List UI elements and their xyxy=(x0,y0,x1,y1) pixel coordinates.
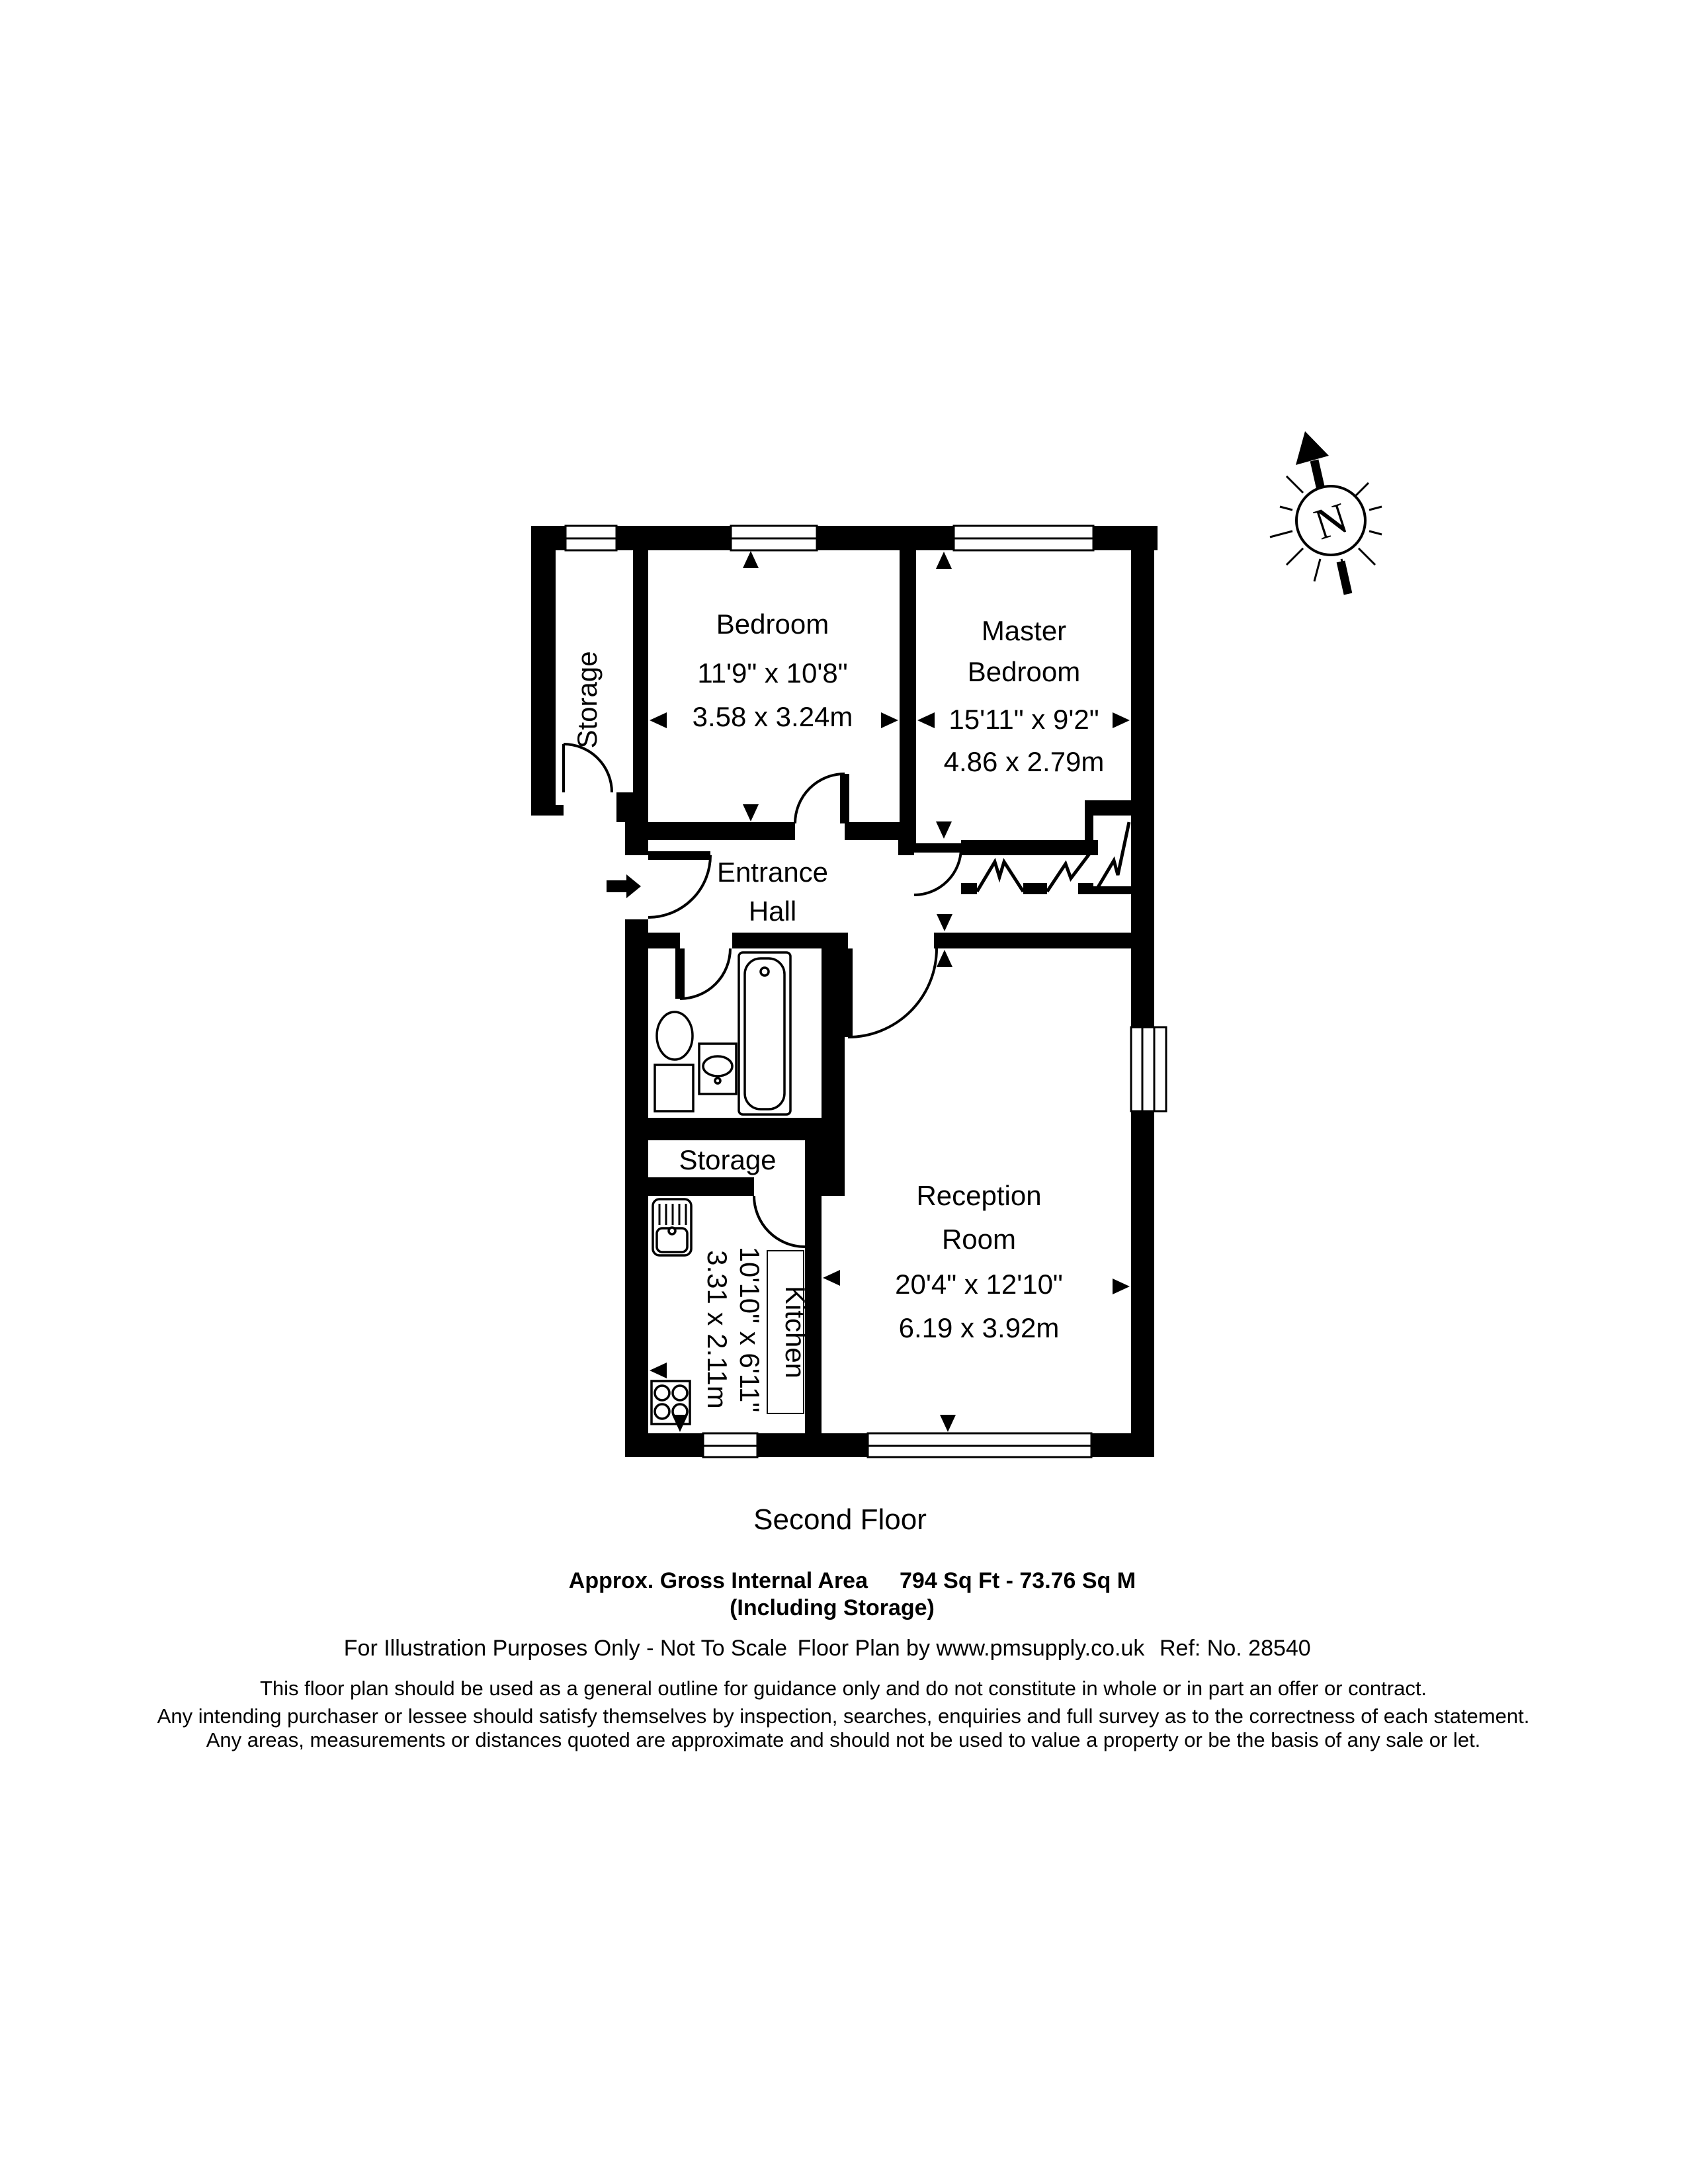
window-reception-right-shape xyxy=(1154,1027,1166,1111)
room-label-hall-line2: Hall xyxy=(749,896,796,927)
basin-icon-shape xyxy=(703,1056,732,1076)
dimension-arrow xyxy=(936,552,952,569)
bathtub-icon-shape xyxy=(745,958,784,1109)
dimension-arrow xyxy=(650,1363,667,1378)
wall-segment xyxy=(817,526,954,550)
north-compass-icon: N xyxy=(1270,431,1382,594)
storage-top-door xyxy=(564,744,612,792)
toilet-icon xyxy=(655,1012,693,1111)
wall-segment xyxy=(845,822,898,840)
page: { "floorplan": { "compass": { "label": "… xyxy=(0,0,1688,2184)
wall-segment xyxy=(961,883,977,894)
window-reception-bottom xyxy=(868,1433,1091,1457)
doors xyxy=(564,744,1129,1247)
area-note: (Including Storage) xyxy=(730,1595,935,1620)
hob-icon-shape xyxy=(673,1386,687,1400)
master-bedroom-door xyxy=(914,843,961,895)
room-label-master-line2: Bedroom xyxy=(968,656,1080,687)
dimension-arrow xyxy=(937,950,952,967)
room-dims-bedroom-metric: 3.58 x 3.24m xyxy=(693,701,853,732)
room-dims-reception-imperial: 20'4" x 12'10" xyxy=(895,1269,1063,1300)
compass-rays-shape xyxy=(1369,507,1382,510)
room-label-reception-line1: Reception xyxy=(916,1180,1041,1211)
wall-segment xyxy=(1023,883,1047,894)
hob-icon-shape xyxy=(655,1386,669,1400)
room-dims-master-imperial: 15'11" x 9'2" xyxy=(949,704,1099,735)
toilet-icon-shape xyxy=(657,1012,693,1060)
disclaimer-line-2: Any intending purchaser or lessee should… xyxy=(157,1704,1530,1728)
window-storage-top xyxy=(566,526,616,550)
wall-segment xyxy=(822,948,845,1118)
hob-icon-shape xyxy=(655,1404,669,1419)
room-label-storage-lower: Storage xyxy=(679,1144,776,1175)
room-dims-reception-metric: 6.19 x 3.92m xyxy=(899,1312,1060,1343)
reception-door-shape xyxy=(848,948,937,1037)
wall-segment xyxy=(531,805,564,816)
illustration-note: For Illustration Purposes Only - Not To … xyxy=(344,1636,787,1661)
front-door-shape xyxy=(648,851,710,860)
compass-rays-shape xyxy=(1270,531,1292,537)
reference-number: Ref: No. 28540 xyxy=(1160,1636,1311,1661)
front-door xyxy=(648,851,710,917)
wall-segment xyxy=(805,1140,845,1196)
dimension-arrow xyxy=(936,821,952,839)
master-bedroom-door-shape xyxy=(914,843,961,853)
kitchen-fixtures xyxy=(652,1199,691,1424)
dimension-arrow xyxy=(650,712,667,728)
wall-segment xyxy=(633,822,795,840)
wall-segment xyxy=(625,933,680,948)
compass-rays-shape xyxy=(1287,548,1303,565)
closet-bifold-doors-shape xyxy=(977,862,1023,892)
compass-rays-shape xyxy=(1369,531,1382,534)
dimension-arrow xyxy=(881,712,898,728)
window-reception-right xyxy=(1131,1027,1166,1111)
window-bedroom xyxy=(731,526,817,550)
dimension-arrow xyxy=(1113,712,1130,728)
front-door-shape xyxy=(648,855,710,917)
dimension-arrow xyxy=(823,1270,840,1286)
master-bedroom-door-shape xyxy=(914,848,961,895)
bathtub-icon xyxy=(739,952,790,1114)
compass-rays-shape xyxy=(1287,476,1303,493)
closet-bifold-doors-shape xyxy=(1095,822,1129,892)
room-dims-kitchen-imperial: 10'10" x 6'11" xyxy=(734,1247,765,1413)
bathroom-door xyxy=(675,948,730,999)
room-label-storage-top: Storage xyxy=(571,651,603,748)
kitchen-door xyxy=(754,1196,805,1247)
captions: Second Floor Approx. Gross Internal Area… xyxy=(157,1503,1530,1751)
compass-rays-shape xyxy=(1359,548,1375,565)
credit: Floor Plan by www.pmsupply.co.uk xyxy=(798,1636,1146,1661)
wall-segment xyxy=(616,792,648,822)
wall-segment xyxy=(1078,883,1093,894)
reception-door xyxy=(845,948,937,1037)
wall-segment xyxy=(648,1177,754,1196)
north-compass-icon-shape xyxy=(1296,431,1329,465)
bedroom-door-shape xyxy=(795,774,845,823)
wall-segment xyxy=(531,526,556,816)
storage-top-door-shape xyxy=(564,744,612,792)
room-label-kitchen: Kitchen xyxy=(780,1286,811,1378)
toilet-icon-shape xyxy=(655,1065,693,1111)
wall-segment xyxy=(648,1118,845,1140)
bathtub-icon-shape xyxy=(761,968,769,976)
room-label-master-line1: Master xyxy=(982,615,1066,646)
dimension-arrow xyxy=(937,914,952,931)
wall-segment xyxy=(1131,1111,1154,1457)
wall-segment xyxy=(1131,526,1154,1027)
dimension-arrow xyxy=(743,551,759,568)
basin-icon xyxy=(699,1044,736,1094)
bathroom-door-shape xyxy=(680,948,730,999)
wall-segment xyxy=(625,948,648,1457)
wall-segment xyxy=(898,822,914,855)
wall-segment xyxy=(1091,1433,1154,1457)
disclaimer-line-3: Any areas, measurements or distances quo… xyxy=(206,1728,1481,1751)
disclaimer-line-1: This floor plan should be used as a gene… xyxy=(260,1677,1427,1700)
bathroom-door-shape xyxy=(675,948,685,999)
wall-segment xyxy=(934,933,1131,948)
room-dims-bedroom-imperial: 11'9" x 10'8" xyxy=(697,657,847,689)
floor-title: Second Floor xyxy=(753,1503,927,1536)
wall-segment xyxy=(961,840,1098,855)
basin-icon-shape xyxy=(715,1078,720,1083)
reception-door-shape xyxy=(845,948,853,1037)
bedroom-door xyxy=(795,774,849,823)
compass-rays-shape xyxy=(1314,559,1320,581)
kitchen-door-shape xyxy=(754,1196,805,1247)
wall-segment xyxy=(625,1433,703,1457)
kitchen-sink-icon-shape xyxy=(669,1228,675,1234)
floor-plan: N Storage Bedroom 11'9" x 10'8" 3.58 x 3… xyxy=(0,0,1688,2184)
wall-segment xyxy=(900,550,916,848)
wall-segment xyxy=(633,550,648,792)
room-label-hall-line1: Entrance xyxy=(717,857,828,888)
area-value: 794 Sq Ft - 73.76 Sq M xyxy=(900,1568,1136,1593)
wall-segment xyxy=(757,1433,868,1457)
wall-segment xyxy=(1085,800,1093,855)
entry-arrow-icon xyxy=(607,874,641,898)
wall-segment xyxy=(616,526,731,550)
area-label: Approx. Gross Internal Area xyxy=(569,1568,868,1593)
window-kitchen xyxy=(703,1433,757,1457)
dimension-arrow xyxy=(743,804,759,821)
dimension-arrow xyxy=(940,1415,956,1432)
dimension-arrow xyxy=(1113,1279,1130,1294)
wall-segment xyxy=(732,933,848,948)
bedroom-door-shape xyxy=(840,774,849,823)
room-label-reception-line2: Room xyxy=(942,1224,1016,1255)
closet-bifold-doors xyxy=(977,822,1129,892)
room-dims-master-metric: 4.86 x 2.79m xyxy=(944,746,1105,777)
room-label-bedroom: Bedroom xyxy=(716,609,829,640)
room-dims-kitchen-metric: 3.31 x 2.11m xyxy=(702,1250,733,1409)
kitchen-sink-icon xyxy=(653,1199,691,1255)
dimension-arrow xyxy=(917,712,935,728)
compass-rays-shape xyxy=(1280,507,1292,510)
compass-rays-shape xyxy=(1355,483,1369,496)
window-master-bedroom xyxy=(954,526,1093,550)
